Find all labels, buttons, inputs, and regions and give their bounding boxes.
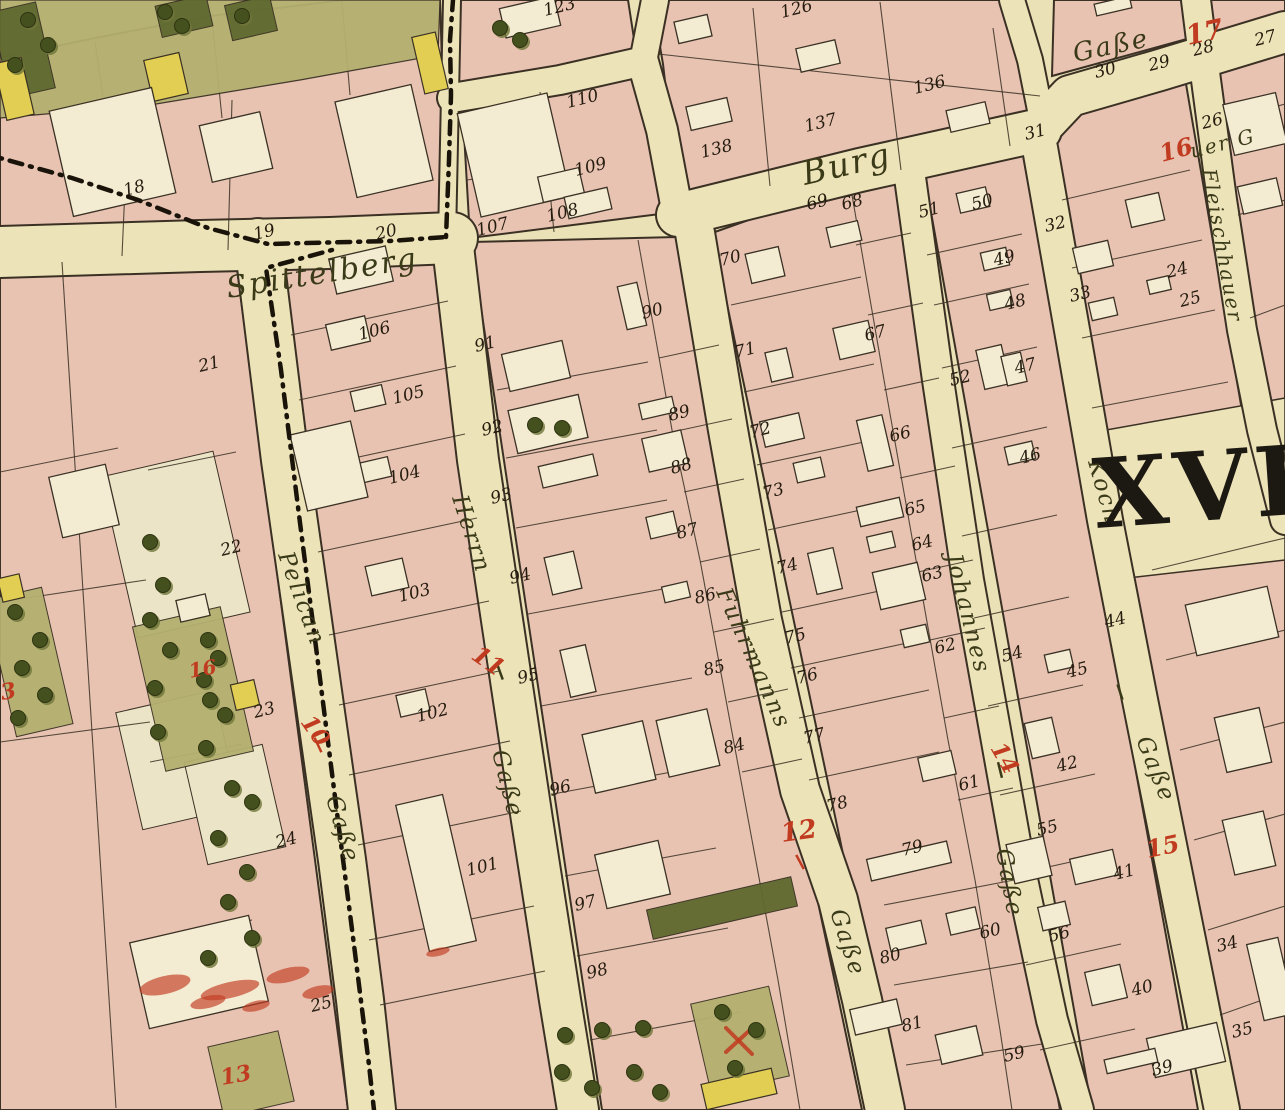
building bbox=[582, 721, 656, 793]
tree-icon bbox=[201, 633, 216, 648]
tree-icon bbox=[8, 58, 23, 73]
tree-icon bbox=[595, 1023, 610, 1038]
red-number-13: 13 bbox=[219, 1060, 254, 1091]
tree-icon bbox=[203, 693, 218, 708]
tree-icon bbox=[528, 418, 543, 433]
tree-icon bbox=[38, 688, 53, 703]
tree-icon bbox=[240, 865, 255, 880]
tree-icon bbox=[175, 19, 190, 34]
building bbox=[1085, 964, 1128, 1005]
tree-icon bbox=[15, 661, 30, 676]
tree-icon bbox=[11, 711, 26, 726]
tree-icon bbox=[513, 33, 528, 48]
tree-icon bbox=[156, 578, 171, 593]
tree-icon bbox=[585, 1081, 600, 1096]
tree-icon bbox=[8, 605, 23, 620]
tree-icon bbox=[21, 13, 36, 28]
tree-icon bbox=[235, 9, 250, 24]
tree-icon bbox=[143, 535, 158, 550]
map-canvas[interactable]: 1819202122232425107108109110123126136137… bbox=[0, 0, 1285, 1110]
tree-icon bbox=[555, 421, 570, 436]
tree-icon bbox=[225, 781, 240, 796]
district-numeral: XVII bbox=[1090, 420, 1285, 551]
tree-icon bbox=[245, 931, 260, 946]
historical-map-svg: 1819202122232425107108109110123126136137… bbox=[0, 0, 1285, 1110]
tree-icon bbox=[211, 831, 226, 846]
tree-icon bbox=[493, 21, 508, 36]
tree-icon bbox=[636, 1021, 651, 1036]
tree-icon bbox=[627, 1065, 642, 1080]
red-number-16: 16 bbox=[187, 654, 219, 682]
tree-icon bbox=[221, 895, 236, 910]
tree-icon bbox=[199, 741, 214, 756]
tree-icon bbox=[41, 38, 56, 53]
tree-icon bbox=[653, 1085, 668, 1100]
tree-icon bbox=[151, 725, 166, 740]
tree-icon bbox=[201, 951, 216, 966]
tree-icon bbox=[715, 1005, 730, 1020]
tree-icon bbox=[148, 681, 163, 696]
red-number-12: 12 bbox=[779, 814, 819, 849]
tree-icon bbox=[33, 633, 48, 648]
tree-icon bbox=[555, 1065, 570, 1080]
tree-icon bbox=[158, 5, 173, 20]
tree-icon bbox=[245, 795, 260, 810]
tree-icon bbox=[143, 613, 158, 628]
tree-icon bbox=[558, 1028, 573, 1043]
tree-icon bbox=[728, 1061, 743, 1076]
tree-icon bbox=[749, 1023, 764, 1038]
tree-icon bbox=[218, 708, 233, 723]
tree-icon bbox=[163, 643, 178, 658]
